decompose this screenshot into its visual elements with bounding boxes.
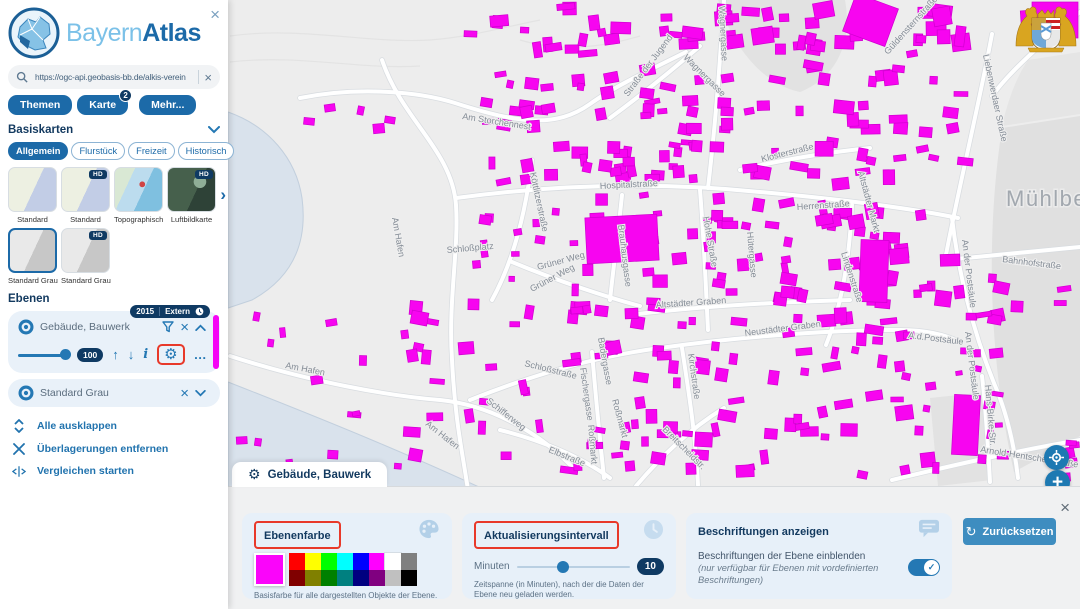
building — [901, 372, 910, 380]
geolocate-button[interactable] — [1044, 445, 1069, 470]
opacity-slider[interactable] — [18, 349, 68, 360]
basemap-thumb-label: Topographisch — [114, 215, 163, 224]
building — [686, 106, 698, 117]
opacity-badge: 100 — [77, 348, 103, 362]
building — [279, 327, 285, 337]
building — [933, 462, 940, 473]
building — [490, 15, 509, 27]
building — [572, 284, 579, 296]
building — [641, 112, 651, 119]
hd-badge: HD — [89, 170, 107, 179]
mehr-label: Mehr... — [151, 99, 184, 111]
tool-link-close[interactable]: Überlagerungen entfernen — [8, 443, 220, 455]
building — [430, 378, 445, 384]
close-icon — [12, 443, 26, 455]
basemap-thumb-label: Standard — [8, 215, 57, 224]
palette-swatch[interactable] — [401, 553, 417, 570]
intervall-caption: Zeitspanne (in Minuten), nach der die Da… — [474, 580, 664, 600]
toggle-check-icon: ✓ — [924, 560, 939, 575]
current-color-swatch[interactable] — [254, 553, 285, 586]
hd-badge: HD — [195, 170, 213, 179]
hd-badge: HD — [89, 231, 107, 240]
building — [509, 276, 515, 281]
building — [541, 103, 555, 114]
basemap-chip-historisch[interactable]: Historisch — [178, 142, 235, 160]
themen-label: Themen — [20, 99, 60, 111]
building — [583, 305, 592, 314]
beschriftungen-toggle[interactable]: ✓ — [908, 559, 940, 576]
building — [765, 221, 779, 229]
building — [577, 83, 584, 91]
building — [817, 406, 828, 418]
building — [781, 286, 795, 298]
building — [954, 26, 966, 47]
building — [686, 123, 701, 133]
building — [324, 104, 335, 113]
aktualisierungsintervall-card: Aktualisierungsintervall Minuten 10 Zeit… — [462, 513, 676, 599]
visibility-eye-icon[interactable] — [18, 385, 34, 401]
settings-tab-title: Gebäude, Bauwerk — [268, 469, 372, 481]
building — [535, 235, 545, 244]
ebenenfarbe-title: Ebenenfarbe — [264, 530, 331, 542]
building — [925, 382, 936, 391]
basemap-chip-freizeit[interactable]: Freizeit — [128, 142, 174, 160]
building — [937, 30, 950, 44]
building — [595, 108, 607, 121]
building — [659, 150, 669, 162]
building — [847, 214, 864, 230]
building — [552, 208, 560, 215]
building — [726, 289, 737, 296]
chat-bubble-icon — [918, 519, 940, 544]
visibility-eye-icon[interactable] — [18, 319, 34, 335]
search-divider — [198, 70, 199, 84]
palette-swatch[interactable] — [321, 553, 337, 570]
building — [254, 438, 261, 446]
building — [866, 156, 876, 165]
basemap-thumb-image: HD — [167, 167, 216, 212]
building — [923, 405, 930, 412]
building — [731, 317, 747, 326]
basiskarten-header: Basiskarten — [8, 124, 220, 136]
building — [657, 108, 667, 114]
building — [893, 122, 908, 135]
building — [721, 73, 734, 83]
building — [781, 256, 791, 264]
basemap-chip-allgemein[interactable]: Allgemein — [8, 142, 68, 160]
beschriftungen-line2: (nur verfügbar für Ebenen mit vordefinie… — [698, 563, 900, 586]
building — [805, 32, 817, 45]
geolocate-icon — [1049, 450, 1064, 465]
reset-icon: ↻ — [966, 524, 977, 540]
ebenenfarbe-highlight-box: Ebenenfarbe — [254, 521, 341, 549]
layer-card-standard-grau: Standard Grau × — [8, 379, 220, 407]
building — [588, 15, 600, 31]
building — [951, 394, 980, 455]
building — [1011, 301, 1023, 313]
building — [742, 7, 760, 16]
building — [857, 470, 868, 479]
layer-tool-links: Alle ausklappenÜberlagerungen entfernenV… — [8, 419, 220, 477]
palette-swatch[interactable] — [401, 570, 417, 587]
building — [620, 441, 629, 450]
building — [851, 346, 859, 354]
building — [653, 275, 668, 288]
palette-icon — [418, 519, 440, 544]
layer-badges: 2015 Extern — [130, 305, 210, 318]
building — [267, 339, 274, 347]
building — [661, 14, 672, 22]
building — [582, 162, 592, 173]
ebenen-header: Ebenen — [8, 293, 220, 305]
building — [501, 452, 511, 460]
tool-link-expand[interactable]: Alle ausklappen — [8, 419, 220, 433]
building — [1054, 300, 1066, 305]
building — [373, 123, 385, 133]
building — [633, 372, 649, 383]
building — [673, 165, 685, 178]
layer-name: Gebäude, Bauwerk — [40, 321, 156, 333]
building — [524, 77, 539, 90]
building — [570, 240, 578, 245]
basemap-thumb-gray[interactable]: Standard Grau — [8, 228, 57, 285]
building — [858, 101, 868, 110]
karte-label: Karte — [89, 99, 116, 111]
basemap-thumb-gray[interactable]: HDStandard Grau — [61, 228, 110, 285]
building — [565, 45, 579, 54]
basemap-thumb-label: Standard — [61, 215, 110, 224]
building — [978, 455, 987, 464]
building — [325, 318, 337, 326]
basemap-thumb-label: Standard Grau — [61, 276, 110, 285]
building — [421, 350, 431, 365]
building — [919, 283, 932, 291]
basemap-thumb-image: HD — [61, 167, 110, 212]
building — [895, 405, 914, 421]
building — [468, 299, 479, 310]
building — [678, 321, 687, 328]
building — [682, 431, 692, 437]
layer-name: Standard Grau — [40, 387, 174, 399]
palette-swatch[interactable] — [305, 570, 321, 587]
basemap-thumb-standard[interactable]: HDStandard — [61, 167, 110, 224]
intervall-title: Aktualisierungsintervall — [484, 530, 609, 542]
search-bar: × — [8, 65, 220, 89]
building — [631, 420, 638, 429]
clock-badge-icon — [195, 307, 204, 316]
basemap-thumb-image — [8, 228, 57, 273]
palette-swatch[interactable] — [353, 570, 369, 587]
building — [741, 222, 751, 230]
thumbs-next-icon[interactable]: › — [220, 185, 226, 205]
building — [783, 237, 792, 247]
building — [807, 169, 820, 179]
building — [571, 307, 583, 315]
building — [712, 279, 725, 289]
basemap-thumb-image — [8, 167, 57, 212]
building — [713, 193, 725, 205]
building — [722, 221, 738, 229]
palette-swatch[interactable] — [385, 553, 401, 570]
building — [611, 452, 622, 458]
tool-link-compare[interactable]: Vergleichen starten — [8, 465, 220, 477]
color-palette-grid — [289, 553, 417, 586]
building — [752, 198, 765, 212]
bayernatlas-logo-icon — [8, 7, 60, 59]
settings-close-icon[interactable]: × — [1060, 499, 1070, 516]
building — [489, 157, 495, 169]
building — [520, 27, 529, 33]
building — [872, 337, 882, 345]
building — [689, 317, 696, 324]
search-clear-icon[interactable]: × — [204, 71, 212, 84]
building — [757, 101, 770, 111]
karte-button[interactable]: Karte 2 — [77, 95, 128, 115]
building — [956, 371, 963, 376]
tab-gear-icon: ⚙ — [248, 466, 261, 483]
building — [578, 33, 588, 47]
building — [893, 154, 906, 161]
building — [640, 88, 655, 100]
building — [480, 97, 493, 107]
building — [1066, 440, 1077, 446]
building — [865, 390, 883, 402]
collapse-icon[interactable] — [195, 324, 206, 331]
building — [510, 322, 520, 327]
more-options-icon[interactable]: … — [194, 347, 208, 362]
settings-tab[interactable]: ⚙ Gebäude, Bauwerk — [232, 462, 387, 487]
building — [715, 368, 729, 382]
building — [883, 170, 895, 185]
gear-highlight-box: ⚙ — [157, 344, 184, 365]
move-up-icon[interactable]: ↑ — [112, 347, 119, 362]
building — [877, 355, 887, 369]
building — [815, 141, 833, 156]
building — [403, 427, 420, 438]
building — [915, 210, 926, 221]
remove-layer-icon[interactable]: × — [180, 386, 189, 401]
building — [687, 229, 697, 239]
building — [821, 434, 829, 441]
building — [775, 44, 785, 54]
nav-buttons: Themen Karte 2 Mehr... — [8, 95, 220, 115]
themen-button[interactable]: Themen — [8, 95, 72, 115]
bayernatlas-app: Am StorchennestAm HafenSchloßplatzStraße… — [0, 0, 1080, 609]
building — [954, 91, 968, 96]
building — [478, 421, 486, 434]
building — [352, 411, 360, 417]
building — [729, 353, 738, 365]
building — [818, 73, 830, 86]
ebenen-title: Ebenen — [8, 293, 50, 305]
palette-swatch[interactable] — [369, 553, 385, 570]
building — [303, 117, 314, 125]
building — [946, 122, 959, 134]
layer-settings-gear-icon[interactable]: ⚙ — [164, 347, 177, 362]
building — [857, 148, 868, 162]
building — [834, 308, 847, 324]
building — [695, 432, 713, 447]
building — [668, 360, 678, 373]
filter-icon[interactable] — [162, 321, 174, 333]
building — [672, 252, 687, 265]
mehr-button[interactable]: Mehr... — [139, 95, 196, 115]
building — [841, 424, 858, 437]
building — [611, 22, 631, 34]
building — [832, 177, 850, 190]
building — [894, 361, 905, 372]
building — [639, 192, 649, 199]
ebenenfarbe-caption: Basisfarbe für alle dargestellten Objekt… — [254, 591, 440, 601]
layer-color-strip — [213, 315, 219, 369]
logo: BayernAtlas — [8, 6, 220, 60]
building — [916, 35, 926, 43]
building — [930, 76, 938, 84]
move-down-icon[interactable]: ↓ — [128, 347, 135, 362]
zuruecksetzen-button[interactable]: ↻ Zurücksetzen — [963, 518, 1056, 545]
building — [682, 95, 698, 106]
building — [597, 28, 606, 37]
building — [691, 140, 702, 152]
building — [779, 14, 789, 22]
ebenenfarbe-card: Ebenenfarbe Basisfarbe für alle dargest — [242, 513, 452, 599]
building — [520, 105, 534, 119]
palette-swatch[interactable] — [289, 553, 305, 570]
remove-layer-icon[interactable]: × — [180, 320, 189, 335]
palette-swatch[interactable] — [305, 553, 321, 570]
building — [635, 397, 646, 409]
basiskarten-title: Basiskarten — [8, 124, 73, 136]
building — [458, 341, 474, 354]
tool-link-label: Vergleichen starten — [37, 465, 134, 477]
building — [600, 86, 614, 100]
building — [906, 50, 917, 58]
info-icon[interactable]: i — [143, 347, 148, 362]
minuten-label: Minuten — [474, 561, 510, 572]
building — [607, 141, 620, 153]
basemap-thumb-standard[interactable]: Standard — [8, 167, 57, 224]
building — [511, 251, 519, 256]
building — [359, 356, 366, 366]
building — [689, 174, 697, 182]
extern-badge: Extern — [165, 307, 190, 316]
palette-swatch[interactable] — [321, 570, 337, 587]
intervall-value-badge: 10 — [637, 558, 664, 575]
building — [486, 364, 497, 371]
building — [541, 83, 554, 91]
brand-name: BayernAtlas — [66, 19, 201, 48]
building — [406, 349, 418, 363]
basemap-thumb-topo[interactable]: Topographisch — [114, 167, 163, 224]
building — [583, 264, 593, 276]
building — [721, 107, 734, 116]
building — [521, 158, 534, 173]
expand-icon[interactable] — [195, 390, 206, 397]
building — [751, 26, 774, 45]
building — [464, 409, 474, 424]
basemap-thumbnails: › StandardHDStandardTopographischHDLuftb… — [8, 167, 220, 285]
beschriftungen-line1: Beschriftungen der Ebene einblenden — [698, 551, 900, 562]
building — [236, 436, 247, 444]
palette-swatch[interactable] — [337, 570, 353, 587]
palette-swatch[interactable] — [289, 570, 305, 587]
building — [794, 414, 802, 423]
brand-bold: Atlas — [142, 19, 201, 47]
beschriftungen-title: Beschriftungen anzeigen — [698, 521, 829, 538]
chevron-down-icon[interactable] — [208, 126, 220, 134]
tool-link-label: Alle ausklappen — [37, 420, 117, 432]
building — [892, 65, 905, 73]
building — [410, 310, 429, 326]
building — [710, 142, 724, 153]
building — [796, 106, 803, 116]
layer-card-gebaeude: 2015 Extern Gebäude, Bauwerk × — [8, 311, 220, 373]
basemap-thumb-label: Standard Grau — [8, 276, 57, 285]
building — [625, 461, 635, 472]
place-label: Mühlberg — [1006, 186, 1080, 211]
basemap-category-chips: AllgemeinFlurstückFreizeitHistorisch — [8, 142, 220, 160]
building — [736, 465, 754, 478]
building — [598, 159, 612, 172]
search-input[interactable] — [33, 71, 193, 83]
building — [761, 7, 773, 21]
building — [657, 351, 671, 360]
reset-label: Zurücksetzen — [983, 526, 1054, 538]
building — [711, 342, 719, 351]
building — [513, 228, 522, 235]
basemap-thumb-aerial[interactable]: HDLuftbildkarte — [167, 167, 216, 224]
basemap-thumb-image — [114, 167, 163, 212]
building — [408, 448, 423, 462]
building — [966, 313, 977, 320]
layer-settings-panel: ⚙ Gebäude, Bauwerk × Ebenenfarbe — [228, 486, 1080, 609]
left-panel: × BayernAtlas × Themen Karte — [0, 0, 228, 609]
building — [472, 260, 480, 268]
building — [673, 378, 680, 388]
basemap-chip-flurstück[interactable]: Flurstück — [71, 142, 125, 160]
building — [889, 115, 907, 124]
panel-close-icon[interactable]: × — [210, 6, 220, 23]
building — [594, 305, 608, 317]
building — [764, 428, 777, 439]
palette-swatch[interactable] — [385, 570, 401, 587]
building — [384, 116, 395, 124]
building — [506, 80, 514, 89]
building — [711, 210, 722, 220]
palette-swatch[interactable] — [337, 553, 353, 570]
building — [253, 312, 261, 322]
building — [553, 141, 569, 152]
building — [954, 285, 965, 299]
beschriftungen-card: Beschriftungen anzeigen Beschriftungen d… — [686, 513, 952, 599]
building — [940, 254, 960, 266]
clock-icon — [643, 519, 664, 545]
building — [544, 169, 557, 180]
building — [943, 107, 959, 119]
building — [932, 6, 953, 27]
building — [557, 3, 575, 11]
palette-swatch[interactable] — [369, 570, 385, 587]
building — [524, 305, 534, 320]
palette-swatch[interactable] — [353, 553, 369, 570]
building — [623, 157, 635, 166]
building — [812, 0, 834, 19]
building — [868, 76, 876, 87]
building — [578, 49, 597, 57]
building — [682, 26, 704, 40]
building — [833, 100, 854, 115]
intervall-slider[interactable] — [517, 561, 630, 573]
